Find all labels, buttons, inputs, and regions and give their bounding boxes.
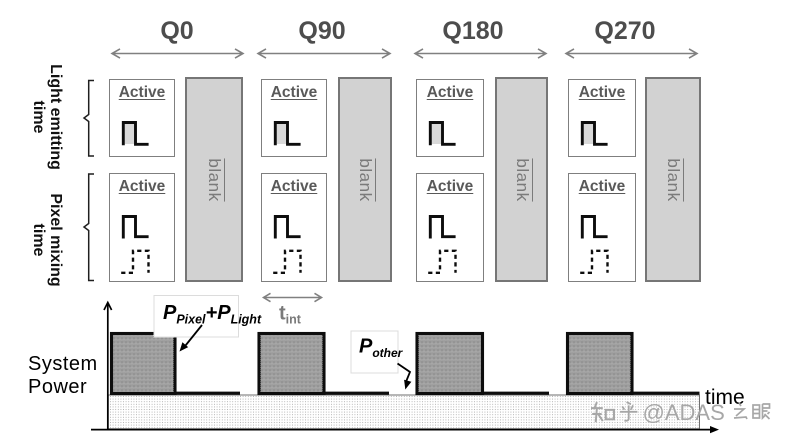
svg-text:tint: tint (279, 303, 302, 327)
svg-text:PPixel+PLight: PPixel+PLight (163, 302, 262, 327)
svg-text:time: time (705, 386, 745, 409)
svg-text:Pother: Pother (359, 336, 404, 361)
svg-text:@ADAS: @ADAS (643, 400, 725, 425)
